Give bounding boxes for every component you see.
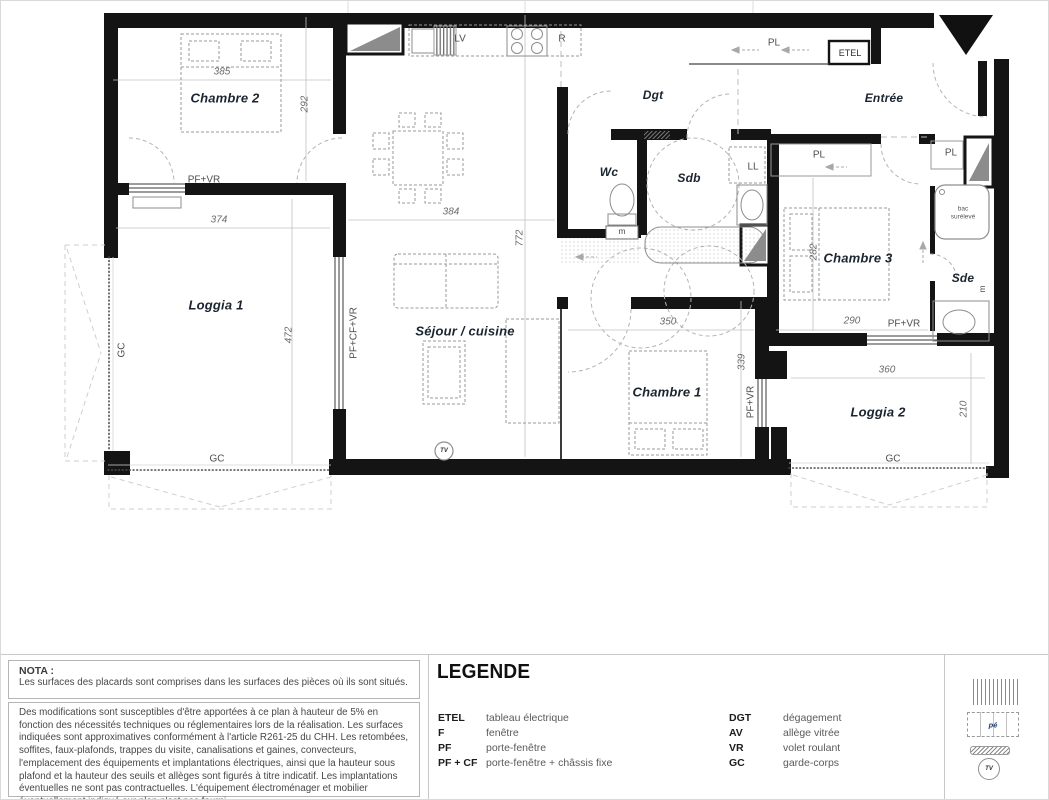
nota-box: NOTA : Les surfaces des placards sont co… — [8, 660, 420, 699]
dimension-lines — [113, 15, 985, 464]
legend-desc-av: allège vitrée — [783, 727, 840, 739]
legend-abbr-vr: VR — [729, 742, 744, 754]
legend-abbr-pfcf: PF + CF — [438, 757, 477, 769]
tv-symbol: TV — [978, 758, 1000, 780]
disclaimer-text: Des modifications sont susceptibles d'êt… — [19, 707, 409, 800]
legend-title: LEGENDE — [437, 661, 530, 684]
disclaimer-box: Des modifications sont susceptibles d'êt… — [8, 702, 420, 797]
floorplan-page: Chambre 2 Loggia 1 Séjour / cuisine Wc S… — [0, 0, 1049, 800]
floorplan-drawing — [1, 1, 1049, 656]
legend-abbr-pf: PF — [438, 742, 451, 754]
panel-divider-top — [1, 654, 1049, 655]
tv-symbol-label: TV — [985, 766, 993, 772]
walls — [104, 13, 1009, 478]
guide-lines — [348, 1, 753, 13]
shelf-unit-symbol: pé — [967, 712, 1019, 737]
legend-abbr-etel: ETEL — [438, 712, 465, 724]
north-arrow-icon — [939, 15, 993, 55]
legend-desc-gc: garde-corps — [783, 757, 839, 769]
shelf-unit-label: pé — [989, 720, 998, 729]
convector-symbol — [970, 746, 1010, 755]
tile-pattern-symbol — [973, 679, 1019, 705]
tv-point-circle — [435, 442, 453, 460]
legend-desc-dgt: dégagement — [783, 712, 841, 724]
av-hatch-strip — [644, 131, 670, 139]
legend-abbr-gc: GC — [729, 757, 745, 769]
furniture — [181, 25, 989, 455]
legend-abbr-av: AV — [729, 727, 743, 739]
etel-box — [829, 41, 869, 64]
nota-intro: Les surfaces des placards sont comprises… — [19, 677, 409, 690]
legend-desc-etel: tableau électrique — [486, 712, 569, 724]
railings — [108, 257, 989, 470]
panel-divider-symbols — [944, 654, 945, 800]
nota-title: NOTA : — [19, 665, 409, 677]
panel-divider-vertical — [428, 654, 429, 800]
legend-desc-vr: volet roulant — [783, 742, 840, 754]
legend-desc-f: fenêtre — [486, 727, 519, 739]
legend-abbr-dgt: DGT — [729, 712, 751, 724]
legend-abbr-f: F — [438, 727, 444, 739]
windows — [129, 181, 937, 427]
legend-desc-pfcf: porte-fenêtre + châssis fixe — [486, 757, 612, 769]
legend-desc-pf: porte-fenêtre — [486, 742, 546, 754]
